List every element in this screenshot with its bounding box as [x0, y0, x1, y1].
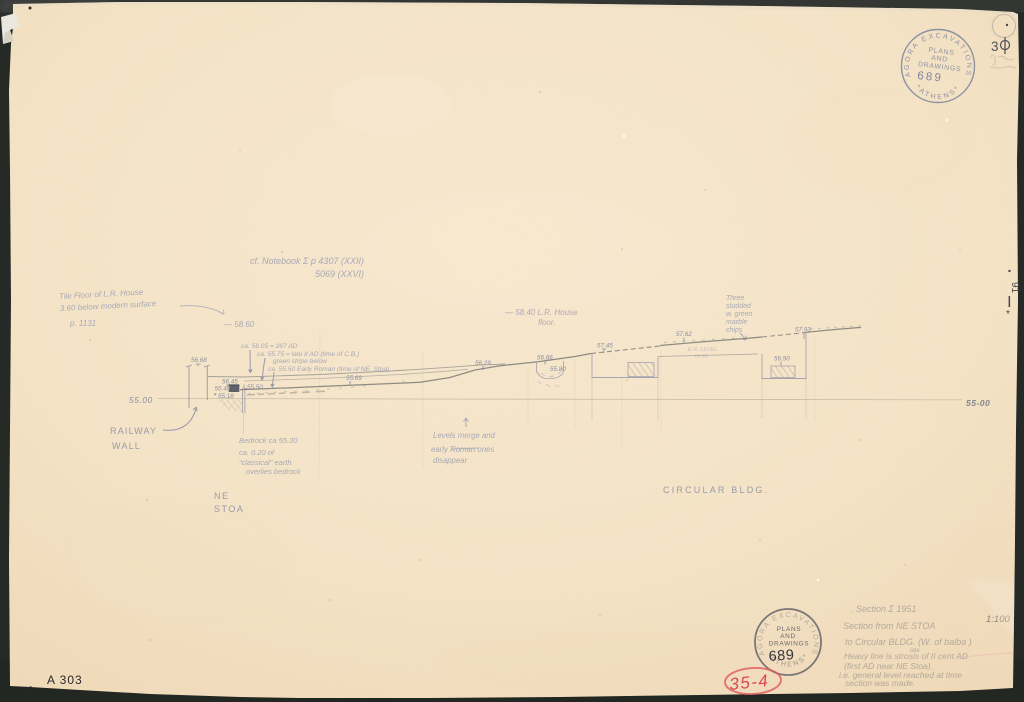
svg-text:Bedrock ca 55.30: Bedrock ca 55.30 [239, 436, 298, 445]
svg-text:56.45: 56.45 [222, 379, 238, 386]
svg-text:Levels merge and: Levels merge and [433, 431, 496, 440]
svg-text:disappear: disappear [433, 456, 468, 465]
svg-text:. Section Σ 1951: . Section Σ 1951 [851, 604, 916, 614]
svg-text:55.80: 55.80 [550, 366, 566, 373]
svg-text:55.18: 55.18 [218, 393, 234, 400]
svg-text:55-00: 55-00 [966, 398, 990, 408]
svg-text:57.62: 57.62 [676, 331, 692, 338]
svg-text:ca. 55.75 = late II AD (time o: ca. 55.75 = late II AD (time of C.B.) [257, 351, 359, 358]
svg-text:floor.: floor. [538, 318, 556, 327]
svg-text:w. green: w. green [726, 311, 753, 318]
svg-text:late: late [910, 648, 920, 654]
svg-text:Heavy line is strosis of II ce: Heavy line is strosis of II cent AD [844, 651, 968, 661]
svg-text:56.66: 56.66 [537, 355, 553, 362]
svg-text:56.68: 56.68 [191, 357, 207, 364]
svg-text:— 58.60: — 58.60 [223, 320, 255, 329]
svg-text:NE: NE [214, 491, 230, 501]
svg-text:ca. 0.20 of: ca. 0.20 of [239, 448, 275, 457]
svg-text:55.48: 55.48 [215, 386, 231, 393]
svg-text:early Roman ones: early Roman ones [431, 445, 494, 454]
svg-text:— 58.40 L.R. House: — 58.40 L.R. House [504, 308, 578, 317]
svg-text:PLANS: PLANS [777, 626, 801, 633]
svg-text:57.93: 57.93 [795, 327, 811, 334]
svg-text:689: 689 [768, 647, 795, 665]
svg-text:E.R. LEVEL: E.R. LEVEL [688, 347, 717, 353]
svg-text:ca. 56.05 = 267 AD: ca. 56.05 = 267 AD [241, 343, 298, 350]
svg-text:cf. Notebook Σ p 4307 (XXII): cf. Notebook Σ p 4307 (XXII) [250, 256, 364, 266]
svg-text:CIRCULAR BLDG.: CIRCULAR BLDG. [663, 485, 769, 495]
svg-text:5069 (XXVI): 5069 (XXVI) [315, 269, 364, 279]
svg-text:studded: studded [726, 303, 752, 310]
svg-text:AND: AND [780, 633, 796, 640]
svg-text:STOA: STOA [214, 504, 244, 514]
svg-text:WALL: WALL [112, 441, 141, 451]
svg-text:to Circular BLDG. (W. of balba: to Circular BLDG. (W. of balba ) [845, 637, 972, 647]
svg-text:56.29: 56.29 [475, 360, 491, 367]
svg-text:RAILWAY: RAILWAY [110, 426, 157, 436]
svg-text:55.00: 55.00 [129, 395, 153, 405]
svg-text:Three: Three [726, 295, 744, 302]
svg-text:IV 31: IV 31 [695, 354, 708, 360]
svg-text:section was made.: section was made. [845, 678, 915, 688]
svg-text:91: 91 [1009, 282, 1020, 294]
svg-text:DRAWINGS: DRAWINGS [769, 641, 810, 648]
svg-text:marble: marble [726, 319, 748, 326]
svg-text:“classical” earth: “classical” earth [239, 458, 292, 467]
svg-text:overlies bedrock: overlies bedrock [246, 467, 302, 476]
svg-text:57.45: 57.45 [597, 343, 613, 350]
svg-text:3: 3 [991, 39, 999, 54]
svg-text:A 303: A 303 [47, 673, 83, 687]
svg-text:56.90: 56.90 [774, 356, 790, 363]
svg-text:Section from NE STOA: Section from NE STOA [843, 621, 935, 631]
svg-text:p. 1131: p. 1131 [69, 319, 96, 328]
svg-text:55.69: 55.69 [346, 375, 362, 382]
svg-text:*: * [1006, 309, 1010, 320]
